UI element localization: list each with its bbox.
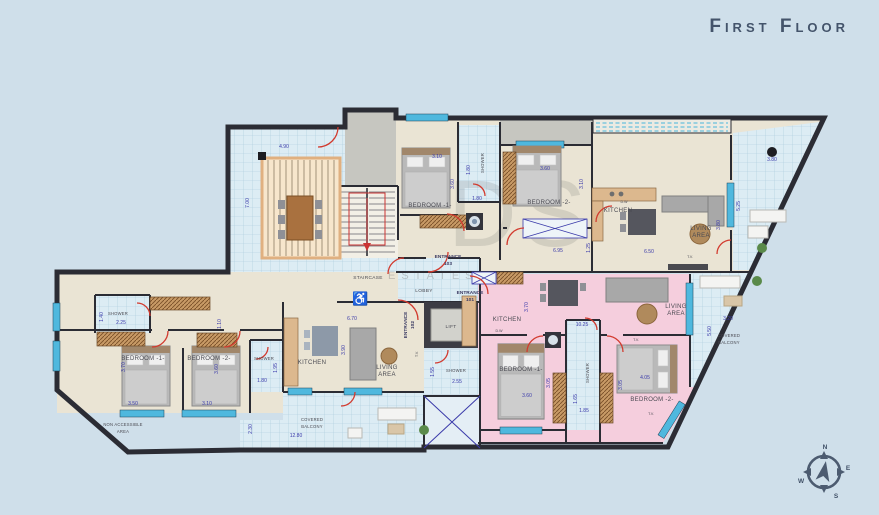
wardrobe: [150, 297, 210, 310]
flat102-bedroom2-depth-dim: 3.60: [214, 364, 220, 374]
flat102-shower2-depth-dim: 1.95: [273, 363, 279, 373]
plant: [752, 276, 762, 286]
flat103-bedroom2-depth-dim: 3.10: [579, 179, 585, 189]
washer-drum-inner: [472, 219, 477, 224]
flat102-tv-label: T.V.: [415, 351, 419, 357]
flat103-living-label-2: AREA: [692, 233, 710, 239]
balcony-bottom-depth-dim: 2.30: [248, 424, 254, 434]
kitchen-counter: [284, 318, 298, 386]
plant: [419, 425, 429, 435]
compass-e-label: E: [846, 465, 851, 472]
flat101-shower-depth-dim: 1.65: [573, 394, 579, 404]
flat101-bedroom1-depth-dim: 3.05: [546, 378, 552, 388]
flat102-entrance-number: 102: [410, 321, 416, 329]
flat103-entrance-label: ENTRANCE: [435, 254, 462, 260]
compass-n-label: N: [823, 444, 828, 451]
flat101-kitchen-label: KITCHEN: [493, 317, 521, 323]
flat102-living-depth-dim: 3.90: [341, 345, 347, 355]
lift-label: LIFT: [445, 324, 456, 330]
balcony-tr-width-dim: 3.80: [767, 157, 777, 163]
sofa: [606, 278, 668, 302]
flat102-shower1-depth-dim: 1.40: [99, 312, 105, 322]
armchair: [381, 348, 397, 364]
wheelchair-icon: ♿: [352, 291, 368, 306]
flat103-bedroom2-width-dim: 3.60: [540, 166, 550, 172]
chair: [304, 330, 310, 338]
dining-table: [312, 326, 338, 356]
outdoor-lounger: [750, 210, 786, 222]
window: [182, 410, 236, 417]
chair: [304, 342, 310, 350]
flat103-dishwasher-label: D.W: [621, 200, 629, 204]
flat103-entrance-number: 103: [444, 261, 452, 267]
flat103-hall-length-dim: 6.95: [553, 248, 563, 254]
flat102-shower2-label: SHOWER: [254, 356, 274, 361]
flat102-entrance-label: ENTRANCE: [403, 311, 409, 338]
core-shower-depth-dim: 1.55: [430, 367, 436, 377]
kitchen-counter: [462, 296, 476, 346]
bed: [498, 344, 544, 419]
balcony-bottom-width-dim: 12.80: [290, 433, 303, 439]
armchair: [637, 304, 657, 324]
flat101-tv-living-label: T.V.: [633, 338, 639, 342]
flat103-bedroom2-label: BEDROOM -2-: [527, 200, 570, 206]
flat103-tv-label: T.V.: [687, 255, 693, 259]
flat102-bedroom1-depth-dim: 3.70: [121, 362, 127, 372]
flat103-hall-width-dim: 1.80: [472, 196, 482, 202]
balcony-right-label-1: COVERED: [718, 333, 740, 338]
lobby-label: LOBBY: [415, 288, 433, 294]
bed: [617, 345, 677, 393]
window: [344, 388, 382, 395]
flat101-kitchen-depth-dim: 3.70: [524, 302, 530, 312]
bed: [402, 148, 450, 208]
flat101-shower-width-dim: 1.85: [579, 408, 589, 414]
dining-table: [548, 280, 578, 306]
balcony-top-right-floor: [733, 122, 820, 270]
flat102-shower2-width-dim: 1.80: [257, 378, 267, 384]
bed: [192, 346, 240, 406]
flat103-bedroom1-width-dim: 3.10: [432, 154, 442, 160]
bed: [122, 346, 170, 406]
non-accessible-label-2: AREA: [117, 429, 129, 434]
chair: [620, 224, 626, 232]
outdoor-chair: [748, 226, 768, 238]
wardrobe: [503, 152, 516, 204]
chair: [315, 230, 322, 239]
window: [727, 183, 734, 227]
core-shower-width-dim: 2.55: [452, 379, 462, 385]
flat101-entrance-label: ENTRANCE: [457, 290, 484, 296]
outdoor-sofa: [378, 408, 416, 420]
window: [288, 388, 312, 395]
chair: [278, 215, 285, 224]
flat102-bedroom2-label: BEDROOM -2-: [187, 356, 230, 362]
outdoor-table: [724, 296, 742, 306]
compass-s-label: S: [834, 493, 839, 500]
flat101-bedroom1-width-dim: 3.60: [522, 393, 532, 399]
wardrobe: [97, 332, 145, 346]
non-accessible-label-1: NON ACCESSIBLE: [103, 422, 142, 427]
flat101-shower-label: SHOWER: [585, 363, 590, 383]
floor-plan-drawing: DS ESTATES: [0, 0, 879, 515]
flat101-bedroom2-label: BEDROOM -2-: [630, 397, 673, 403]
chair: [540, 294, 546, 302]
staircase-label: STAIRCASE: [353, 275, 383, 281]
flat101-living-label-1: LIVING: [665, 304, 687, 310]
chair: [315, 215, 322, 224]
bed: [513, 146, 561, 206]
chair: [315, 200, 322, 209]
flat101-bedroom2-depth-dim: 3.05: [618, 380, 624, 390]
terrace-depth-dim: 7.00: [245, 198, 251, 208]
flat101-bedroom1-label: BEDROOM -1-: [499, 367, 542, 373]
outdoor-table: [388, 424, 404, 434]
chair: [278, 230, 285, 239]
flat101-tv-bedroom2-label: T.V.: [648, 412, 654, 416]
floor-plan-page: First Floor: [0, 0, 879, 515]
chair: [278, 200, 285, 209]
balcony-bottom-label-2: BALCONY: [301, 424, 322, 429]
outdoor-chair: [348, 428, 362, 438]
flat102-living-width-dim: 6.70: [347, 316, 357, 322]
flat102-bedroom2-width-dim: 3.10: [202, 401, 212, 407]
flat103-shower-depth-dim: 1.80: [466, 165, 472, 175]
flat101-living-label-2: AREA: [667, 311, 685, 317]
flat102-living-label-2: AREA: [378, 372, 396, 378]
flat102-hall-depth-dim: 1.10: [217, 319, 223, 329]
balcony-bottom-label-1: COVERED: [301, 417, 323, 422]
sofa: [350, 328, 376, 380]
flat103-bedroom1-label: BEDROOM -1-: [408, 203, 451, 209]
flat103-living-label-1: LIVING: [690, 226, 712, 232]
flat102-shower1-label: SHOWER: [108, 311, 128, 316]
flat102-bedroom1-label: BEDROOM -1-: [121, 356, 164, 362]
outdoor-sofa: [700, 276, 740, 288]
compass-needle: [816, 460, 833, 482]
terrace-table: [287, 196, 313, 240]
wardrobe: [553, 373, 566, 423]
kitchen-counter: [592, 201, 603, 241]
window: [686, 283, 693, 335]
balcony-right-width-dim: 3.20: [723, 316, 733, 322]
flat103-living-width-dim: 6.50: [644, 249, 654, 255]
plant: [757, 243, 767, 253]
flat101-bedroom2-width-dim: 4.05: [640, 375, 650, 381]
flat102-living-label-1: LIVING: [376, 365, 398, 371]
core-shower-label: SHOWER: [446, 368, 466, 373]
flat103-bedroom1-depth-dim: 3.60: [450, 179, 456, 189]
flat103-kitchen-label: KITCHEN: [604, 208, 632, 214]
tv-stand: [668, 264, 708, 270]
wardrobe: [497, 272, 523, 284]
terrace-width-dim: 4.90: [279, 144, 289, 150]
window: [120, 410, 164, 417]
column: [767, 147, 777, 157]
washer-drum: [548, 335, 558, 345]
hob-burner: [610, 192, 615, 197]
balcony-right-depth-dim: 5.50: [707, 326, 713, 336]
flat101-dishwasher-label: D.W: [496, 329, 504, 333]
window: [406, 114, 448, 121]
compass-rose: N E S W: [798, 444, 851, 500]
flat103-living-depth-dim: 3.80: [716, 220, 722, 230]
hob-burner: [619, 192, 624, 197]
flat102-kitchen-label: KITCHEN: [298, 360, 326, 366]
flat103-duct-dim: 1.25: [586, 243, 592, 253]
flat103-shower-label: SHOWER: [480, 153, 485, 173]
window: [500, 427, 542, 434]
compass-w-label: W: [798, 478, 805, 485]
balcony-right-label-2: BALCONY: [718, 340, 739, 345]
window: [53, 341, 60, 371]
flat101-entrance-number: 101: [466, 297, 474, 303]
flat102-shower1-width-dim: 2.25: [116, 320, 126, 326]
balcony-tr-depth-dim: 5.25: [736, 201, 742, 211]
window: [53, 303, 60, 331]
chair: [540, 283, 546, 291]
chair: [580, 283, 586, 291]
flat101-living-width-dim: 10.25: [576, 322, 589, 328]
wardrobe: [600, 373, 613, 423]
flat102-bedroom1-width-dim: 3.50: [128, 401, 138, 407]
roof-strip: [345, 110, 396, 186]
column: [258, 152, 266, 160]
